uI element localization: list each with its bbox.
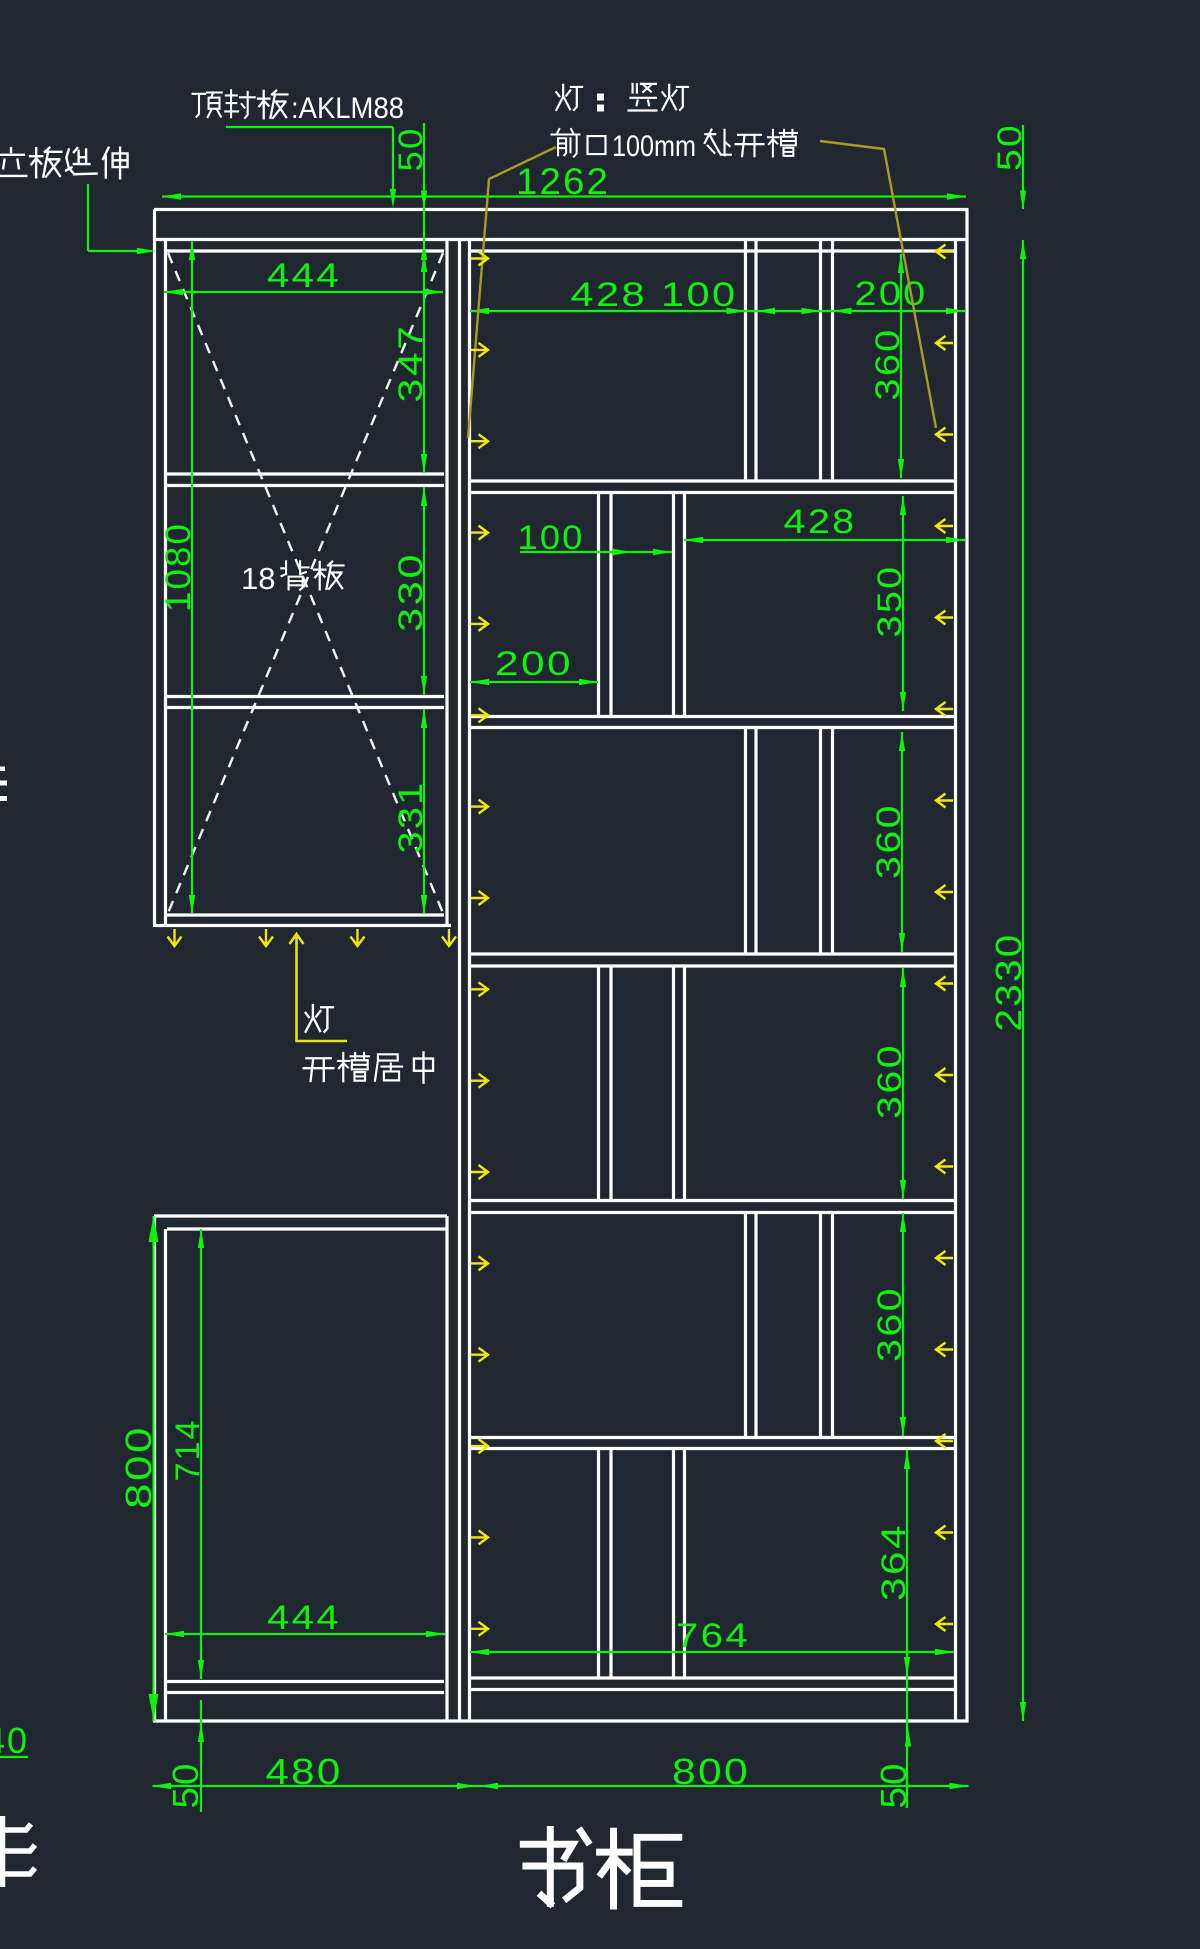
svg-text:40: 40 [0,1720,29,1761]
svg-text:50: 50 [392,127,430,172]
svg-text:18: 18 [241,561,275,596]
svg-text:350: 350 [871,565,909,638]
svg-text:1080: 1080 [159,522,198,612]
svg-text:360: 360 [871,1286,909,1362]
svg-text:2330: 2330 [988,933,1029,1032]
svg-text:480: 480 [266,1751,343,1792]
svg-text:444: 444 [267,1599,341,1637]
svg-text:331: 331 [392,781,430,854]
svg-text::AKLM88: :AKLM88 [291,92,404,125]
svg-text:428: 428 [784,503,857,541]
svg-text:428 100: 428 100 [571,276,738,314]
svg-text:800: 800 [672,1751,750,1792]
svg-text:360: 360 [871,1043,909,1119]
svg-text:360: 360 [869,328,907,401]
svg-text:200: 200 [855,275,928,313]
svg-text:764: 764 [676,1617,750,1655]
svg-text:50: 50 [165,1762,206,1809]
svg-text:444: 444 [267,257,341,295]
svg-text:800: 800 [118,1425,159,1509]
svg-text:714: 714 [169,1419,207,1482]
svg-text:50: 50 [873,1762,914,1809]
svg-text:330: 330 [392,552,430,632]
svg-text:100mm: 100mm [612,130,696,163]
svg-text:347: 347 [392,324,430,403]
svg-text:50: 50 [991,123,1029,171]
svg-text:360: 360 [870,803,908,879]
svg-text:1262: 1262 [516,161,610,202]
svg-text:200: 200 [495,645,573,683]
svg-text:100: 100 [518,519,585,557]
svg-text:364: 364 [875,1523,913,1601]
